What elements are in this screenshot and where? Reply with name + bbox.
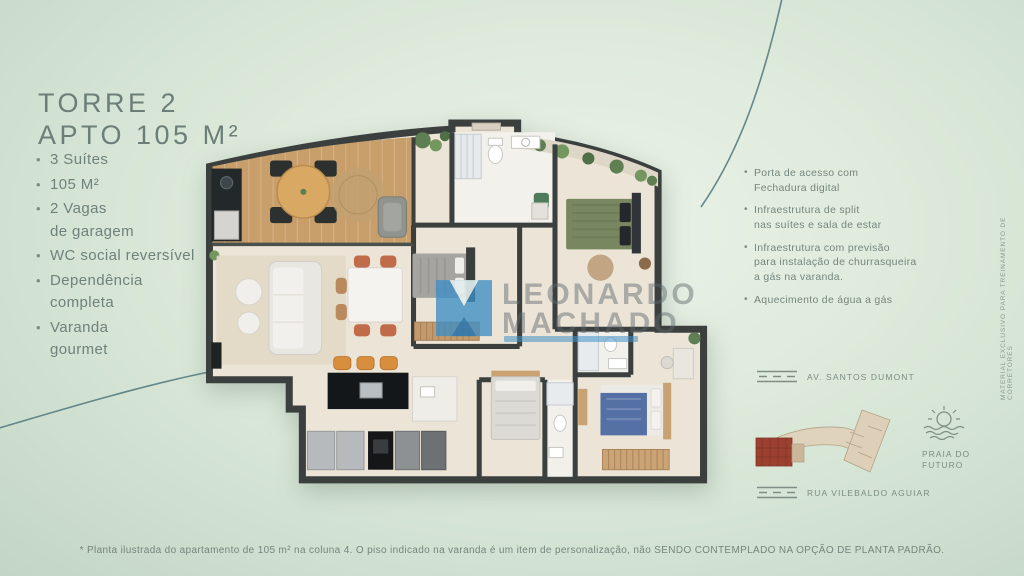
bullet-icon: •: [36, 149, 50, 172]
side-note: MATERIAL EXCLUSIVO PARA TREINAMENTO DE C…: [1000, 180, 1014, 400]
dining-chair: [336, 278, 347, 294]
armchair-cushion: [383, 203, 401, 231]
headboard-wood: [663, 383, 671, 440]
watermark-text: LEONARDO MACHADO: [502, 280, 698, 339]
feature-text: Varanda gourmet: [50, 317, 108, 362]
pillow-dark: [620, 226, 631, 245]
sofa-seat: [273, 268, 303, 349]
toilet-tank: [488, 138, 502, 145]
beach-label: PRAIA DO FUTURO: [922, 449, 982, 470]
table-plant: [300, 189, 306, 195]
sink: [549, 447, 563, 457]
feature-item: •Dependência completa: [36, 270, 246, 315]
bullet-icon: •: [36, 174, 50, 197]
dining-table: [348, 268, 403, 323]
feature-text: Aquecimento de água a gás: [754, 293, 892, 308]
bullet-icon: •: [744, 241, 754, 285]
feature-item: •Porta de acesso com Fechadura digital: [744, 166, 969, 195]
road-top-label: AV. SANTOS DUMONT: [807, 372, 915, 382]
laundry-unit: [532, 203, 548, 219]
dining-chair: [354, 324, 370, 336]
bar-stool: [357, 357, 374, 370]
feature-item: •Varanda gourmet: [36, 317, 246, 362]
pillow: [651, 389, 661, 407]
side-table: [639, 257, 651, 269]
watermark-tagline-bar: [504, 336, 638, 342]
watermark-line2: MACHADO: [502, 309, 698, 338]
toilet: [554, 415, 566, 431]
bullet-icon: •: [744, 203, 754, 232]
dining-chair: [354, 255, 370, 267]
disclaimer: * Planta ilustrada do apartamento de 105…: [0, 545, 1024, 556]
site-plan: [750, 396, 918, 484]
feature-text: WC social reversível: [50, 245, 195, 268]
building-block: [792, 444, 804, 462]
feature-text: 105 M²: [50, 174, 99, 197]
feature-text: Dependência completa: [50, 270, 143, 315]
cabinet-glass: [373, 439, 388, 453]
shower: [547, 383, 573, 405]
desk: [673, 348, 693, 378]
pillow: [495, 381, 535, 391]
sink-2: [421, 387, 435, 397]
pillow: [651, 411, 661, 429]
title-line2: APTO 105 M²: [38, 120, 241, 152]
arc-bottom-left: [0, 371, 214, 429]
watermark-line1: LEONARDO: [502, 280, 698, 309]
bullet-icon: •: [744, 293, 754, 308]
bullet-icon: •: [744, 166, 754, 195]
dishwasher: [422, 431, 446, 469]
title-line1: TORRE 2: [38, 88, 241, 120]
sun-waves-icon: [922, 404, 966, 440]
toilet: [488, 145, 502, 163]
feature-item: •Infraestrutura de split nas suítes e sa…: [744, 203, 969, 232]
highlighted-tower-2: [756, 438, 792, 466]
desk-chair: [661, 357, 673, 369]
road-bottom-label: RUA VILEBALDO AGUIAR: [807, 488, 931, 498]
feature-item: •WC social reversível: [36, 245, 246, 268]
feature-item: •2 Vagas de garagem: [36, 198, 246, 243]
road-bottom: RUA VILEBALDO AGUIAR: [757, 486, 931, 499]
bullet-icon: •: [36, 270, 50, 315]
refrigerator: [307, 431, 334, 469]
pillow: [455, 257, 464, 273]
feature-text: 2 Vagas de garagem: [50, 198, 134, 243]
feature-text: 3 Suítes: [50, 149, 108, 172]
building-angled-wing: [844, 410, 890, 472]
features-left-list: •3 Suítes •105 M² •2 Vagas de garagem •W…: [36, 149, 246, 364]
pillow-dark: [620, 203, 631, 222]
bar-stool: [380, 357, 397, 370]
page-title: TORRE 2 APTO 105 M²: [38, 88, 241, 152]
bullet-icon: •: [36, 245, 50, 268]
bar-stool: [334, 357, 351, 370]
master-sink: [609, 359, 627, 369]
feature-text: Infraestrutura de split nas suítes e sal…: [754, 203, 881, 232]
dining-chair: [380, 255, 396, 267]
dresser: [578, 389, 587, 425]
road-icon: [757, 486, 797, 499]
shower: [455, 134, 481, 178]
dining-chair: [336, 304, 347, 320]
counter: [413, 377, 457, 421]
feature-item: •Aquecimento de água a gás: [744, 293, 969, 308]
watermark: LEONARDO MACHADO: [436, 280, 698, 342]
headboard: [632, 193, 641, 254]
road-icon: [757, 370, 797, 383]
bullet-icon: •: [36, 317, 50, 362]
entry-door: [472, 123, 500, 130]
road-top: AV. SANTOS DUMONT: [757, 370, 915, 383]
beach-marker: PRAIA DO FUTURO: [922, 404, 982, 470]
feature-item: •3 Suítes: [36, 149, 246, 172]
dining-chair: [380, 324, 396, 336]
wardrobe-rack: [602, 449, 669, 469]
oven: [395, 431, 419, 469]
feature-item: •Infraestrutura com previsão para instal…: [744, 241, 969, 285]
feature-text: Porta de acesso com Fechadura digital: [754, 166, 858, 195]
sink: [360, 383, 382, 398]
feature-text: Infraestrutura com previsão para instala…: [754, 241, 917, 285]
feature-item: •105 M²: [36, 174, 246, 197]
features-right-list: •Porta de acesso com Fechadura digital •…: [744, 166, 969, 316]
bedroom-3: [491, 371, 540, 440]
refrigerator: [337, 431, 364, 469]
round-rug: [587, 254, 613, 280]
watermark-m-logo-icon: [436, 280, 492, 342]
bullet-icon: •: [36, 198, 50, 243]
